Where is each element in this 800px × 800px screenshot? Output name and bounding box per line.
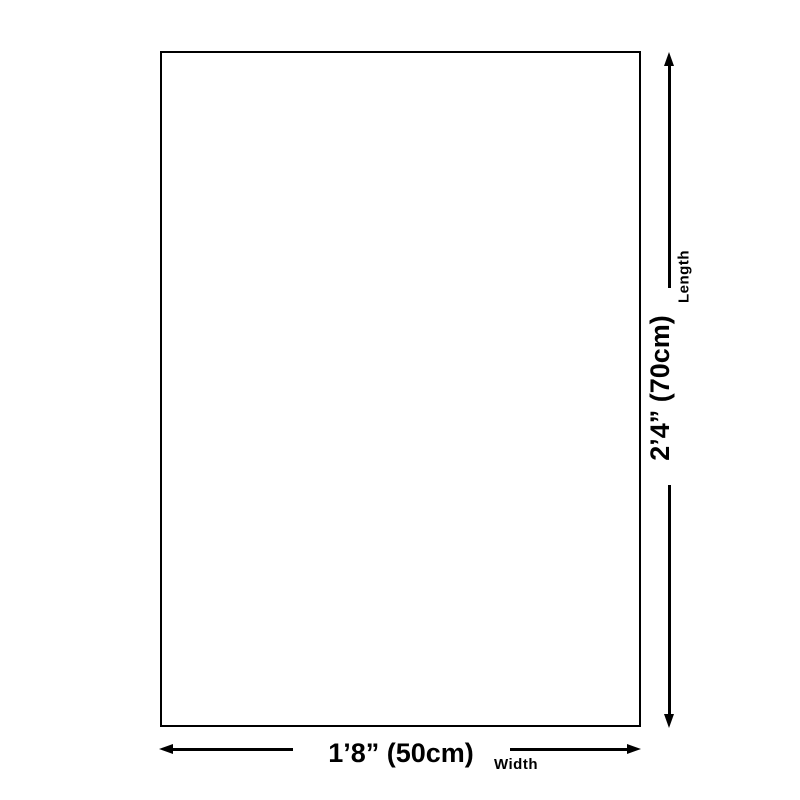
product-outline-rect bbox=[160, 51, 641, 727]
width-dimension-line-left bbox=[172, 748, 293, 751]
width-dimension-line-right bbox=[510, 748, 628, 751]
dimension-diagram: Length 2’4” (70cm) 1’8” (50cm) Width bbox=[0, 0, 800, 800]
length-measurement-value: 2’4” (70cm) bbox=[645, 278, 675, 498]
arrow-left-icon bbox=[159, 744, 173, 754]
length-dimension-line-bottom bbox=[668, 485, 671, 715]
length-axis-label: Length bbox=[676, 217, 693, 337]
length-dimension-line-top bbox=[668, 64, 671, 288]
arrow-down-icon bbox=[664, 714, 674, 728]
arrow-right-icon bbox=[627, 744, 641, 754]
width-axis-label: Width bbox=[466, 756, 566, 773]
